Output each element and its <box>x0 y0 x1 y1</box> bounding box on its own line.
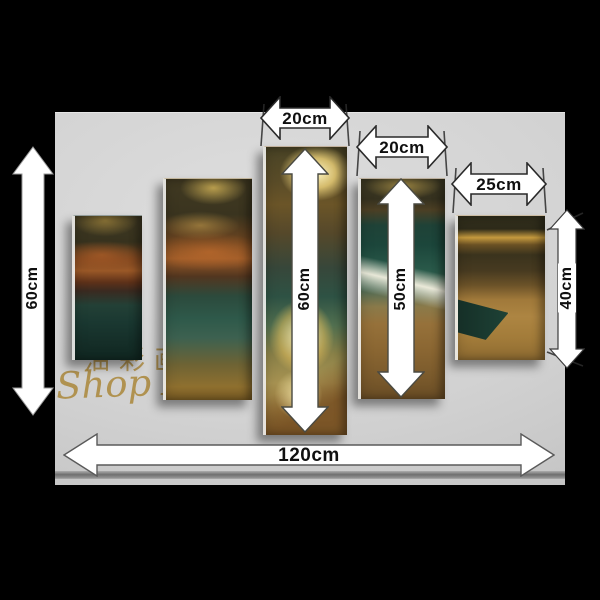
panel5-height-label: 40cm <box>558 264 576 313</box>
set-height-label: 60cm <box>24 264 42 313</box>
panel3-width-label: 20cm <box>260 109 350 129</box>
panel3-height-label: 60cm <box>296 265 314 314</box>
canvas-panel-2 <box>163 178 252 400</box>
set-width-label: 120cm <box>63 445 555 467</box>
canvas-panel-1 <box>72 215 142 360</box>
panel5-width-label: 25cm <box>451 175 547 195</box>
lagoon-shape <box>458 291 508 340</box>
panel4-height-label: 50cm <box>392 265 410 314</box>
canvas-panel-5 <box>455 215 545 360</box>
product-image: 油彩画 Shop Art 20cm 20cm <box>0 0 600 600</box>
panel4-width-label: 20cm <box>356 138 448 158</box>
